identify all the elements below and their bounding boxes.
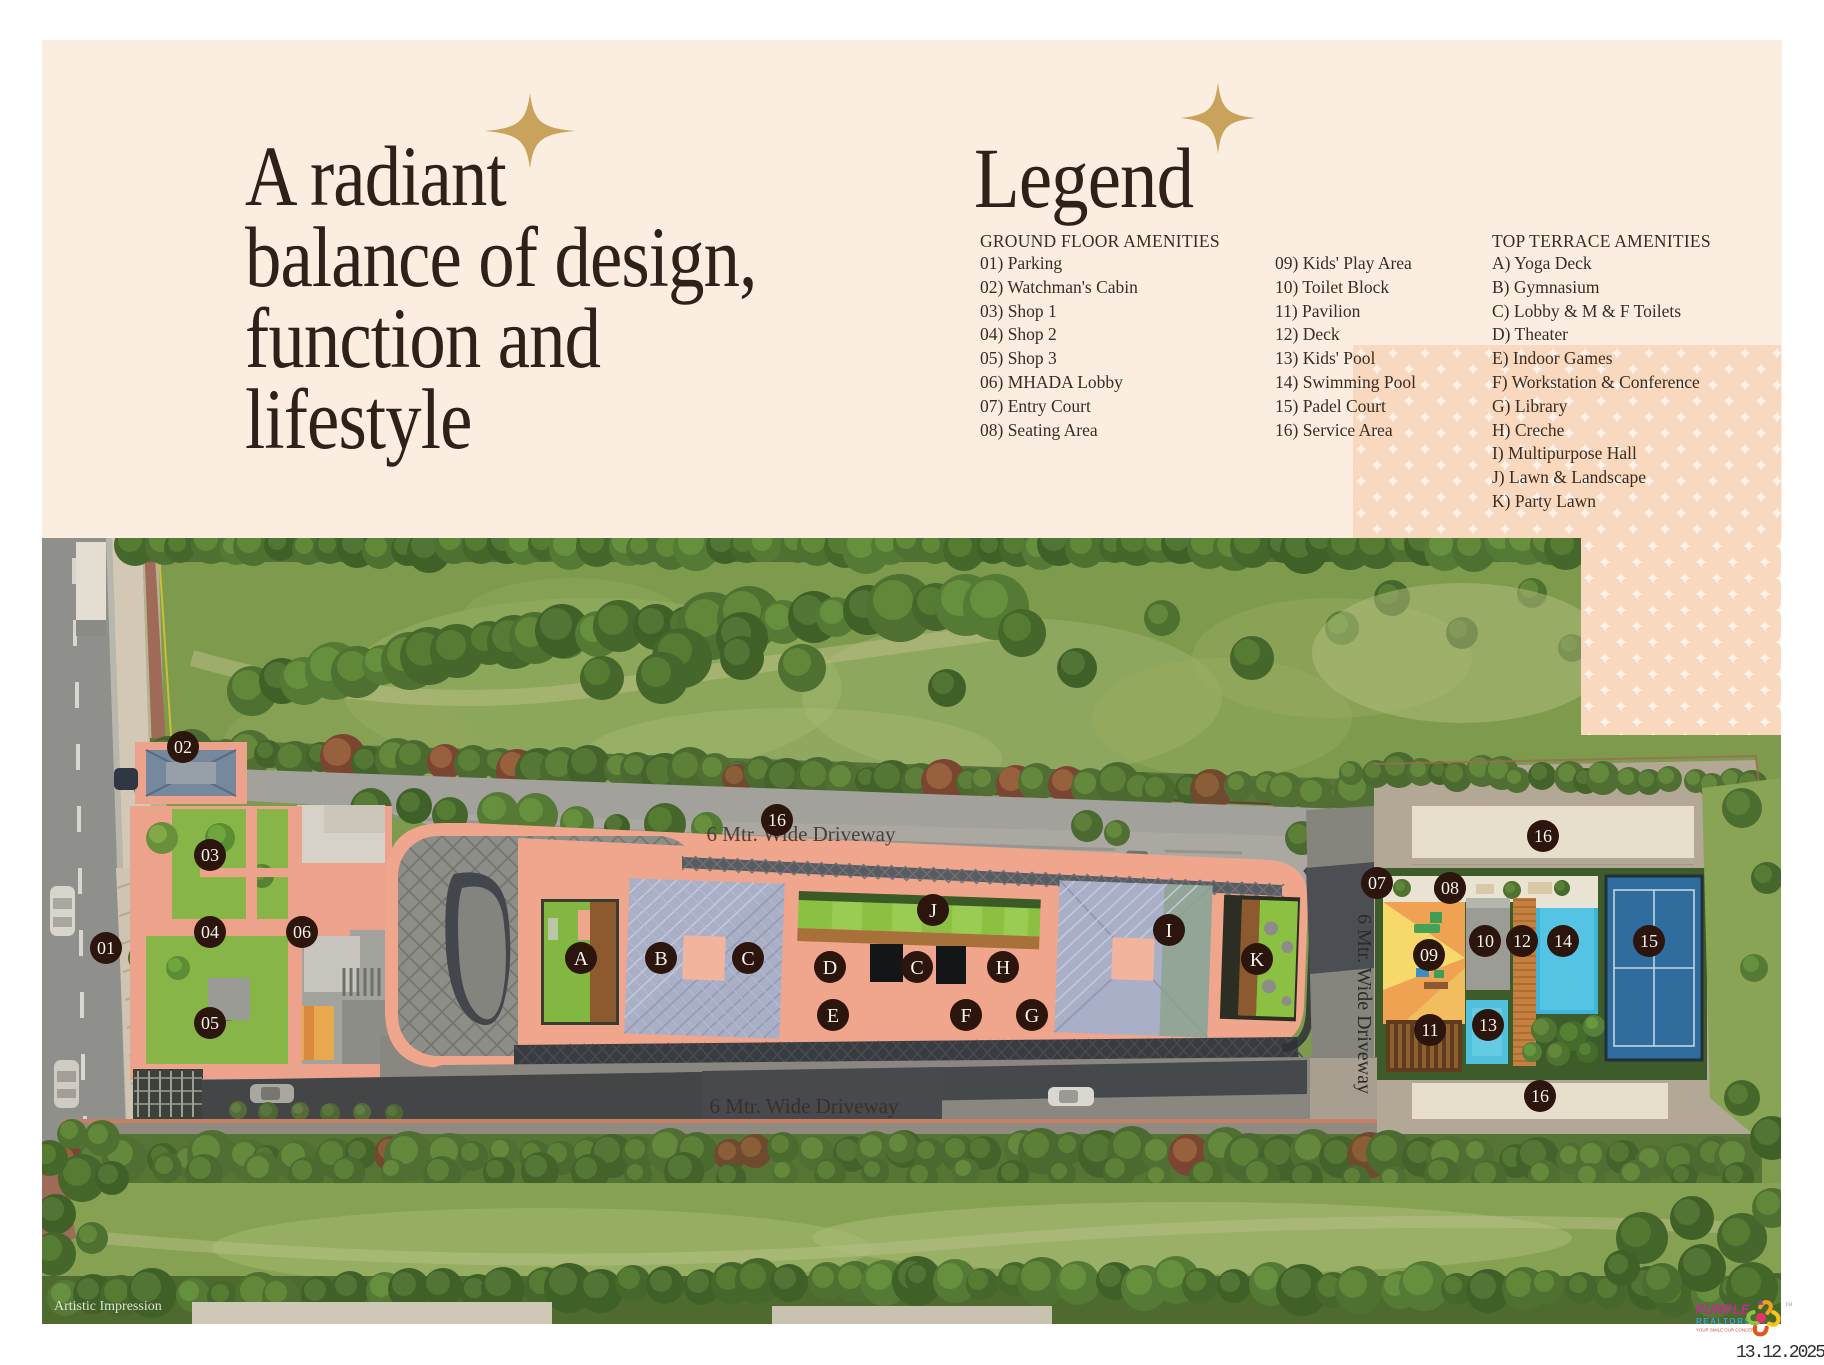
svg-text:PURPLE: PURPLE [1695, 1302, 1751, 1317]
svg-text:K: K [1250, 949, 1265, 971]
svg-text:04: 04 [201, 922, 219, 942]
svg-text:16: 16 [1534, 826, 1552, 846]
svg-text:16: 16 [1531, 1086, 1549, 1106]
svg-text:D: D [823, 957, 837, 979]
svg-text:C: C [741, 948, 754, 970]
svg-text:16: 16 [768, 810, 786, 830]
svg-text:B: B [654, 948, 667, 970]
svg-text:14: 14 [1554, 931, 1572, 951]
svg-text:A: A [574, 948, 589, 970]
svg-text:08: 08 [1441, 878, 1459, 898]
svg-text:09: 09 [1420, 945, 1438, 965]
svg-text:15: 15 [1640, 931, 1658, 951]
svg-text:6 Mtr. Wide Driveway: 6 Mtr. Wide Driveway [710, 1094, 899, 1118]
svg-text:12: 12 [1513, 931, 1531, 951]
svg-text:05: 05 [201, 1013, 219, 1033]
svg-text:13: 13 [1479, 1015, 1497, 1035]
svg-text:H: H [996, 957, 1010, 979]
svg-text:03: 03 [201, 845, 219, 865]
svg-text:6 Mtr. Wide Driveway: 6 Mtr. Wide Driveway [1353, 914, 1375, 1094]
svg-text:07: 07 [1368, 873, 1386, 893]
svg-text:E: E [827, 1005, 839, 1027]
svg-text:F: F [960, 1005, 971, 1027]
svg-text:06: 06 [293, 922, 311, 942]
svg-text:TM: TM [1785, 1303, 1793, 1308]
svg-text:YOUR SMILE OUR CONCERN: YOUR SMILE OUR CONCERN [1696, 1328, 1757, 1333]
svg-text:C: C [910, 957, 923, 979]
svg-text:11: 11 [1421, 1020, 1438, 1040]
svg-text:01: 01 [97, 938, 115, 958]
svg-text:REALTORS: REALTORS [1696, 1317, 1751, 1326]
svg-text:G: G [1025, 1005, 1039, 1027]
svg-text:6 Mtr. Wide Driveway: 6 Mtr. Wide Driveway [707, 822, 896, 846]
svg-text:J: J [929, 900, 937, 922]
svg-text:10: 10 [1476, 931, 1494, 951]
svg-text:02: 02 [174, 737, 192, 757]
svg-text:I: I [1166, 920, 1173, 942]
